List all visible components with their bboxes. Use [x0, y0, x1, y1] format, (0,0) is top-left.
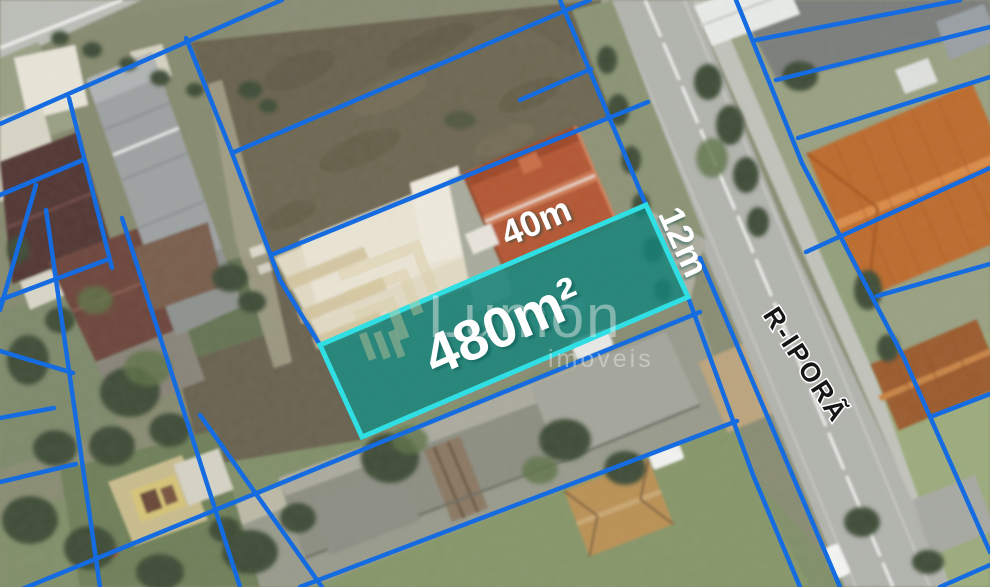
- svg-text:imóveis: imóveis: [548, 345, 654, 373]
